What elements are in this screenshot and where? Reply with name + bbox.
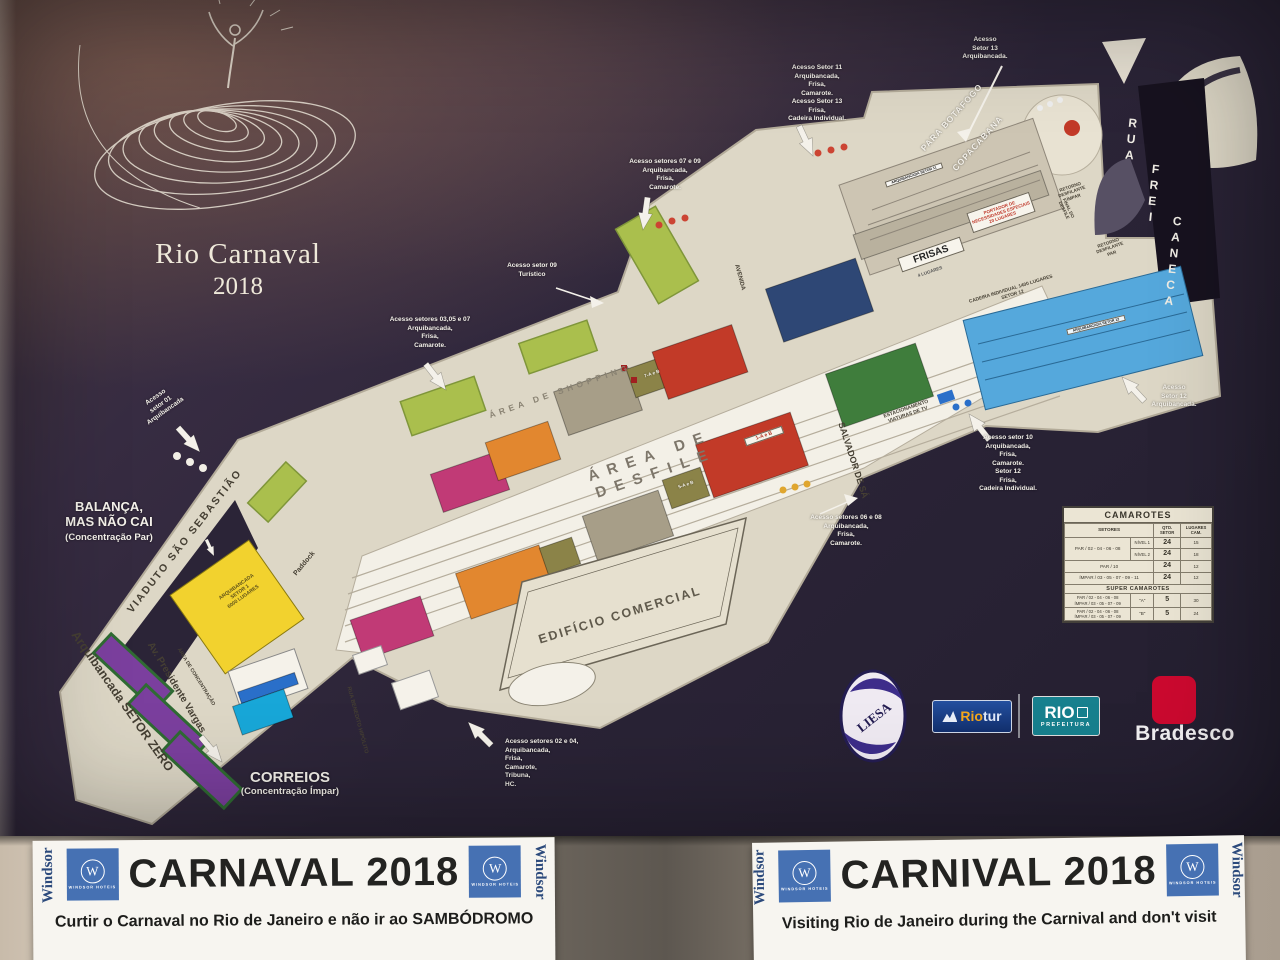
annotation-acesso-setor-11: Acesso Setor 11 Arquibancada, Frisa, Cam… (758, 64, 876, 124)
riotur-logo: Riotur (932, 700, 1012, 733)
cell-lugares: 15 (1181, 537, 1212, 549)
windsor-vertical-label: Windsor (752, 868, 768, 885)
logo-divider (1018, 694, 1020, 738)
windsor-hotels-label: WINDSOR HOTEIS (1169, 881, 1217, 886)
cell-lugares: 12 (1181, 572, 1212, 584)
cell-setores-impar: ÍMPAR / 03 - 05 - 07 - 09 (1066, 601, 1129, 606)
annotation-balanca: BALANÇA, MAS NÃO CAI (38, 500, 180, 530)
windsor-logo: W WINDSOR HOTEIS (1166, 844, 1219, 897)
windsor-logo: W WINDSOR HOTEIS (778, 850, 831, 903)
bradesco-icon (1152, 676, 1196, 724)
mountain-icon (942, 711, 957, 722)
sheet-title-pt: CARNAVAL 2018 (128, 849, 459, 896)
annotation-acesso-setor-09: Acesso setor 09 Turístico (482, 262, 582, 279)
annotation-acesso-setores-02-04: Acesso setores 02 e 04, Arquibancada, Fr… (505, 738, 615, 789)
annotation-acesso-setores-03-05-07: Acesso setores 03,05 e 07 Arquibancada, … (365, 316, 495, 350)
sheet-carnival-en: Windsor W WINDSOR HOTEIS CARNIVAL 2018 W… (752, 835, 1246, 960)
col-qtd: QTD. SETOR (1154, 524, 1181, 538)
windsor-hotels-label: WINDSOR HOTEIS (781, 887, 829, 892)
windsor-vertical-label: Windsor (1228, 861, 1244, 878)
annotation-acesso-setores-06-08: Acesso setores 06 e 08 Arquibancada, Fri… (788, 514, 904, 548)
cell-setores: PAR / 02 - 04 - 06 - 08 (1065, 537, 1131, 561)
poster-title-line2: 2018 (118, 273, 358, 301)
rio-prefeitura-logo: RIO PREFEITURA (1032, 696, 1100, 736)
table-subheader-row: SUPER CAMAROTES (1065, 584, 1212, 594)
cell-nivel: NÍVEL 1 (1131, 537, 1154, 549)
annotation-balanca-sub: (Concentração Par) (38, 532, 180, 545)
camarotes-table: CAMAROTES SETORES QTD. SETOR LUGARES CAM… (1062, 506, 1214, 623)
cell-tipo: "B" (1131, 607, 1154, 621)
table-row: PAR / 02 - 04 - 06 - 08 ÍMPAR / 03 - 05 … (1065, 594, 1212, 608)
annotation-acesso-setores-07-09: Acesso setores 07 e 09 Arquibancada, Fri… (600, 158, 730, 192)
cell-qtd: 5 (1154, 594, 1181, 608)
windsor-vertical-label: Windsor (40, 866, 56, 883)
table-row: ÍMPAR / 03 - 05 - 07 - 09 - 11 24 12 (1065, 572, 1212, 584)
col-setores: SETORES (1065, 524, 1154, 538)
super-camarotes-title: SUPER CAMAROTES (1065, 584, 1212, 594)
table-row: PAR / 02 - 04 - 06 - 08 ÍMPAR / 03 - 05 … (1065, 607, 1212, 621)
annotation-acesso-setor-13: Acesso Setor 13 Arquibancada. (945, 36, 1025, 62)
poster-title-line1: Rio Carnaval (118, 238, 358, 271)
windsor-monogram: W (483, 857, 507, 881)
windsor-hotels-label: WINDSOR HOTEIS (472, 882, 520, 886)
annotation-acesso-setor-12: Acesso Setor 12 Arquibancada. (1138, 384, 1210, 410)
annotation-correios-sub: (Concentração Ímpar) (222, 786, 358, 799)
sheet-subtitle-pt: Curtir o Carnaval no Rio de Janeiro e nã… (33, 910, 555, 932)
cell-lugares: 24 (1181, 607, 1212, 621)
camarotes-title: CAMAROTES (1064, 508, 1212, 523)
col-lugares: LUGARES CAM. (1181, 524, 1212, 538)
cell-qtd: 5 (1154, 607, 1181, 621)
windsor-monogram: W (792, 861, 816, 885)
cell-lugares: 18 (1181, 549, 1212, 561)
photo-of-carnival-map-poster: LIESA Rio Carnaval 2018 Acesso Setor 13 … (0, 0, 1280, 960)
cell-setores-impar: ÍMPAR / 03 - 05 - 07 - 09 (1066, 614, 1129, 619)
cell-lugares: 12 (1181, 561, 1212, 573)
wall-background: Windsor W WINDSOR HOTEIS CARNAVAL 2018 W… (0, 836, 1280, 960)
windsor-monogram: W (80, 859, 104, 883)
riotur-label-rio: Rio (960, 708, 983, 724)
cell-setores: PAR / 10 (1065, 561, 1154, 573)
bradesco-label: Bradesco (1120, 722, 1250, 746)
windsor-logo: W WINDSOR HOTEIS (66, 848, 118, 900)
poster-title: Rio Carnaval 2018 (118, 238, 358, 301)
annotation-acesso-setor-10: Acesso setor 10 Arquibancada, Frisa, Cam… (966, 434, 1050, 494)
sambadrome-poster: LIESA Rio Carnaval 2018 Acesso Setor 13 … (0, 0, 1280, 836)
windsor-logo: W WINDSOR HOTEIS (469, 845, 521, 897)
prefeitura-emblem-icon (1077, 707, 1088, 718)
prefeitura-rio-label: RIO (1044, 704, 1074, 721)
windsor-monogram: W (1180, 855, 1204, 879)
poster-edge-highlight (0, 0, 16, 836)
cell-nivel: NÍVEL 2 (1131, 549, 1154, 561)
cell-qtd: 24 (1154, 572, 1181, 584)
windsor-hotels-label: WINDSOR HOTEIS (69, 885, 117, 889)
sheet-title-en: CARNIVAL 2018 (840, 848, 1157, 898)
prefeitura-label: PREFEITURA (1041, 722, 1091, 728)
liesa-logo: LIESA (841, 671, 905, 761)
cell-setores: PAR / 02 - 04 - 06 - 08 ÍMPAR / 03 - 05 … (1065, 607, 1131, 621)
sheet-carnaval-pt: Windsor W WINDSOR HOTEIS CARNAVAL 2018 W… (33, 837, 556, 960)
riotur-label-tur: tur (983, 708, 1002, 724)
annotation-correios: CORREIOS (222, 768, 358, 788)
table-row: PAR / 10 24 12 (1065, 561, 1212, 573)
windsor-vertical-label: Windsor (531, 863, 547, 880)
cell-setores: ÍMPAR / 03 - 05 - 07 - 09 - 11 (1065, 572, 1154, 584)
cell-qtd: 24 (1154, 537, 1181, 549)
cell-qtd: 24 (1154, 561, 1181, 573)
sheet-subtitle-en: Visiting Rio de Janeiro during the Carni… (753, 908, 1245, 934)
cell-setores: PAR / 02 - 04 - 06 - 08 ÍMPAR / 03 - 05 … (1065, 594, 1131, 608)
cell-tipo: "A" (1131, 594, 1154, 608)
dancer-illustration (79, 0, 364, 227)
table-row: PAR / 02 - 04 - 06 - 08 NÍVEL 1 24 15 (1065, 537, 1212, 549)
table-header-row: SETORES QTD. SETOR LUGARES CAM. (1065, 524, 1212, 538)
cell-qtd: 24 (1154, 549, 1181, 561)
cell-lugares: 30 (1181, 594, 1212, 608)
